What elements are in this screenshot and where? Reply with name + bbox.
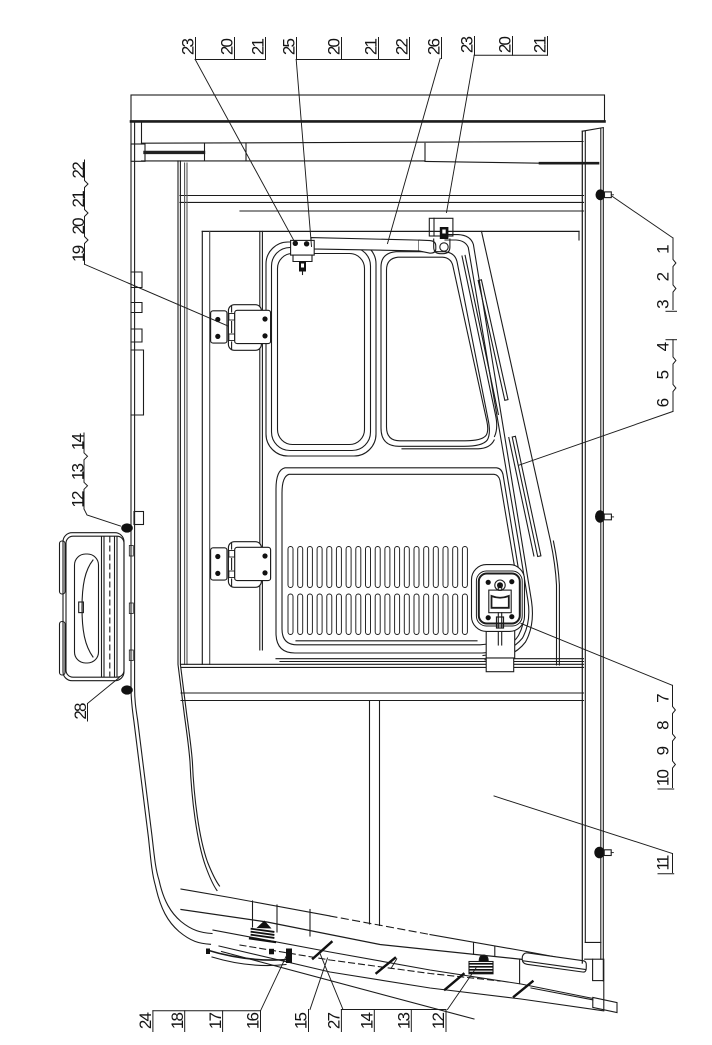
svg-text:9: 9	[654, 746, 673, 755]
svg-text:24: 24	[136, 1013, 155, 1030]
svg-text:8: 8	[654, 721, 673, 730]
svg-text:23: 23	[179, 39, 198, 56]
svg-text:13: 13	[69, 464, 88, 481]
svg-text:18: 18	[168, 1013, 187, 1030]
svg-text:21: 21	[362, 39, 381, 56]
svg-text:27: 27	[325, 1013, 344, 1030]
svg-text:5: 5	[654, 370, 673, 379]
svg-text:13: 13	[395, 1013, 414, 1030]
svg-text:11: 11	[654, 855, 673, 870]
svg-text:22: 22	[393, 39, 412, 56]
svg-text:20: 20	[325, 39, 344, 56]
svg-text:7: 7	[654, 694, 673, 703]
svg-text:14: 14	[358, 1013, 377, 1030]
svg-text:22: 22	[69, 162, 88, 179]
svg-text:20: 20	[69, 218, 88, 235]
svg-text:23: 23	[458, 37, 477, 54]
svg-text:12: 12	[69, 491, 88, 508]
svg-text:14: 14	[69, 434, 88, 451]
svg-text:26: 26	[425, 39, 444, 56]
svg-text:21: 21	[249, 39, 268, 56]
svg-text:17: 17	[206, 1013, 225, 1030]
svg-text:20: 20	[496, 37, 515, 54]
svg-text:28: 28	[71, 703, 90, 720]
svg-text:15: 15	[292, 1013, 311, 1030]
svg-text:3: 3	[654, 300, 673, 309]
svg-text:2: 2	[654, 272, 673, 281]
svg-text:20: 20	[218, 39, 237, 56]
svg-text:25: 25	[280, 39, 299, 56]
svg-text:16: 16	[244, 1013, 263, 1030]
svg-text:19: 19	[69, 245, 88, 262]
svg-text:21: 21	[69, 191, 88, 208]
svg-text:12: 12	[429, 1013, 448, 1030]
svg-text:21: 21	[531, 37, 550, 54]
svg-text:1: 1	[654, 245, 673, 254]
svg-text:10: 10	[654, 770, 673, 787]
svg-text:4: 4	[654, 342, 673, 351]
svg-text:6: 6	[654, 398, 673, 407]
